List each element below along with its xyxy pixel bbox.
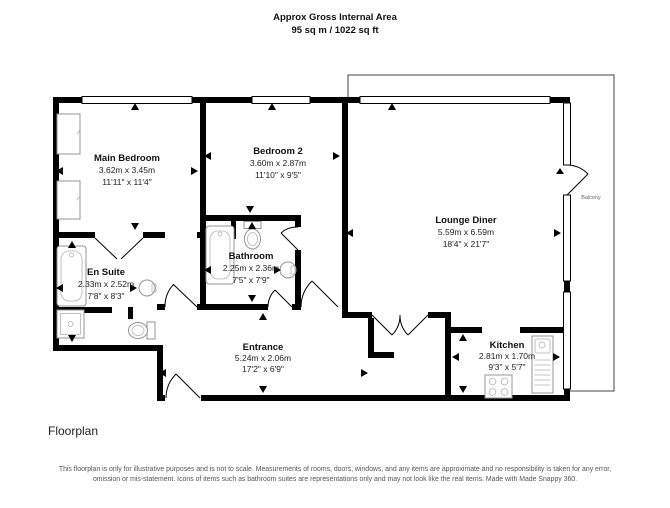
bathroom-sink-basin [280,262,296,278]
wall-entrance-top-a [157,304,165,310]
arrow-up-main-bedroom [131,103,139,110]
wall-kitchen-left [445,312,451,401]
wall-mainbed-bottom-b [143,232,165,238]
sink-icon [139,280,156,296]
ensuite-toilet-cistern [147,322,155,339]
room-name: Kitchen [490,340,525,351]
floorplan-caption: Floorplan [48,424,98,438]
room-name: En Suite [87,267,125,278]
wall-kitchen-top-b [520,327,570,333]
disclaimer-text: This floorplan is only for illustrative … [53,465,618,486]
kitchen-sink-icon [532,336,553,393]
arrow-right-bedroom2 [333,152,340,160]
wall-ensuite-stub2 [128,307,133,319]
arrow-down-bathroom [248,295,256,302]
arrow-up-lounge [388,103,396,110]
wall-lounge-left [342,97,348,318]
wall-mainbed-bottom-c [197,232,206,238]
room-dims-imperial: 9'3" x 5'7" [488,362,525,372]
room-name: Entrance [243,342,284,353]
room-name: Bathroom [229,251,274,262]
lounge-double-door-arc-right [400,315,408,335]
front-door-opening [165,394,201,402]
bedroom2-door-leaf [312,281,338,307]
room-dims-imperial: 11'11" x 11'4" [102,177,151,187]
hob-body [485,375,512,398]
arrow-down-bedroom2 [246,206,254,213]
room-label-main-bedroom: Main Bedroom 3.62m x 3.45m 11'11" x 11'4… [94,153,160,187]
window-kitchen [564,292,571,389]
floorplan-drawing: Balcony [0,0,670,508]
room-name: Main Bedroom [94,153,160,164]
arrow-down-main-bedroom [131,223,139,230]
room-dims-imperial: 7'8" x 8'3" [87,291,124,301]
wall-mainbed-bottom-a [53,232,95,238]
room-label-bedroom-2: Bedroom 2 3.60m x 2.87m 11'10" x 9'5" [250,146,306,180]
wardrobe-icon [57,181,80,219]
wardrobe-icon [57,114,80,154]
shower-tray [57,310,84,338]
window-main-bedroom [82,97,192,104]
arrow-right-entrance [361,369,368,377]
window-lounge-right-upper [564,103,571,165]
arrow-right-lounge [554,229,561,237]
room-label-kitchen: Kitchen 2.81m x 1.70m 9'3" x 5'7" [479,340,535,372]
arrow-left-kitchen [452,353,459,361]
room-dims-metric: 5.24m x 2.06m [235,353,291,363]
room-dims-metric: 5.59m x 6.59m [438,227,494,237]
wardrobe-top [57,114,80,154]
bathroom-door-leaf [275,290,292,307]
corridor-door-leaf [174,285,197,307]
window-bedroom2 [252,97,310,104]
bathroom-second-door-arc [281,227,298,233]
hob-icon [485,375,512,398]
room-dims-imperial: 7'5" x 7'9" [232,275,269,285]
shower-icon [57,310,84,338]
room-name: Bedroom 2 [253,146,303,157]
lounge-double-door-leaf-right [408,315,428,335]
window-lounge-top [360,97,550,104]
wall-bathroom-right-a [295,215,301,227]
ensuite-sink-basin [139,280,155,296]
arrow-up-ensuite [68,241,76,248]
wall-lounge-bottom-a [342,312,372,318]
room-label-lounge-diner: Lounge Diner 5.59m x 6.59m 18'4" x 21'7" [435,215,497,249]
bathtub-icon [57,246,86,306]
room-dims-imperial: 17'2" x 6'9" [242,364,284,374]
wall-bedroom2-bottom [200,215,298,221]
room-dims-metric: 3.62m x 3.45m [99,165,155,175]
floorplan-page: Approx Gross Internal Area 95 sq m / 102… [0,0,670,508]
arrow-right-main-bedroom [191,167,198,175]
wall-kitchen-top-a [451,327,482,333]
bedroom2-door-arc [301,281,312,307]
bathroom-second-door-leaf [281,233,298,250]
room-dims-imperial: 11'10" x 9'5" [255,170,301,180]
bathroom-door-arc [268,290,275,307]
wardrobe-bottom [57,181,80,219]
arrow-up-kitchen [459,334,467,341]
wall-entrance-stub [368,352,394,358]
corridor-door-arc [165,284,174,307]
window-lounge-right-lower [564,195,571,281]
room-dims-metric: 2.81m x 1.70m [479,351,535,361]
arrow-up-entrance [259,313,267,320]
room-name: Lounge Diner [435,215,497,226]
ensuite-double-door-leaf-right [121,238,143,259]
ensuite-toilet-bowl [129,323,148,339]
toilet-icon [129,322,156,339]
room-label-entrance: Entrance 5.24m x 2.06m 17'2" x 6'9" [235,342,291,374]
balcony-label: Balcony [581,195,601,201]
room-dims-metric: 3.60m x 2.87m [250,158,306,168]
wall-entrance-top-b [197,304,268,310]
room-dims-metric: 2.33m x 2.52m [78,279,134,289]
wall-ensuite-bottom [53,345,163,351]
bathroom-toilet-bowl [245,229,261,249]
wall-bathroom-right-b [295,250,301,310]
ensuite-double-door-leaf-left [95,238,117,259]
arrow-down-kitchen [459,386,467,393]
balcony-door-opening [562,165,572,195]
arrow-up-bedroom2 [268,103,276,110]
sink-icon [280,262,296,278]
room-dims-metric: 2.25m x 2.36m [223,263,279,273]
room-dims-imperial: 18'4" x 21'7" [443,239,490,249]
lounge-double-door-arc-left [392,315,400,335]
lounge-double-door-leaf-left [372,315,392,335]
arrow-right-kitchen [553,353,560,361]
arrow-down-entrance [259,386,267,393]
wall-entrance-top-c [292,304,301,310]
wall-bedroom-divider [200,97,206,310]
